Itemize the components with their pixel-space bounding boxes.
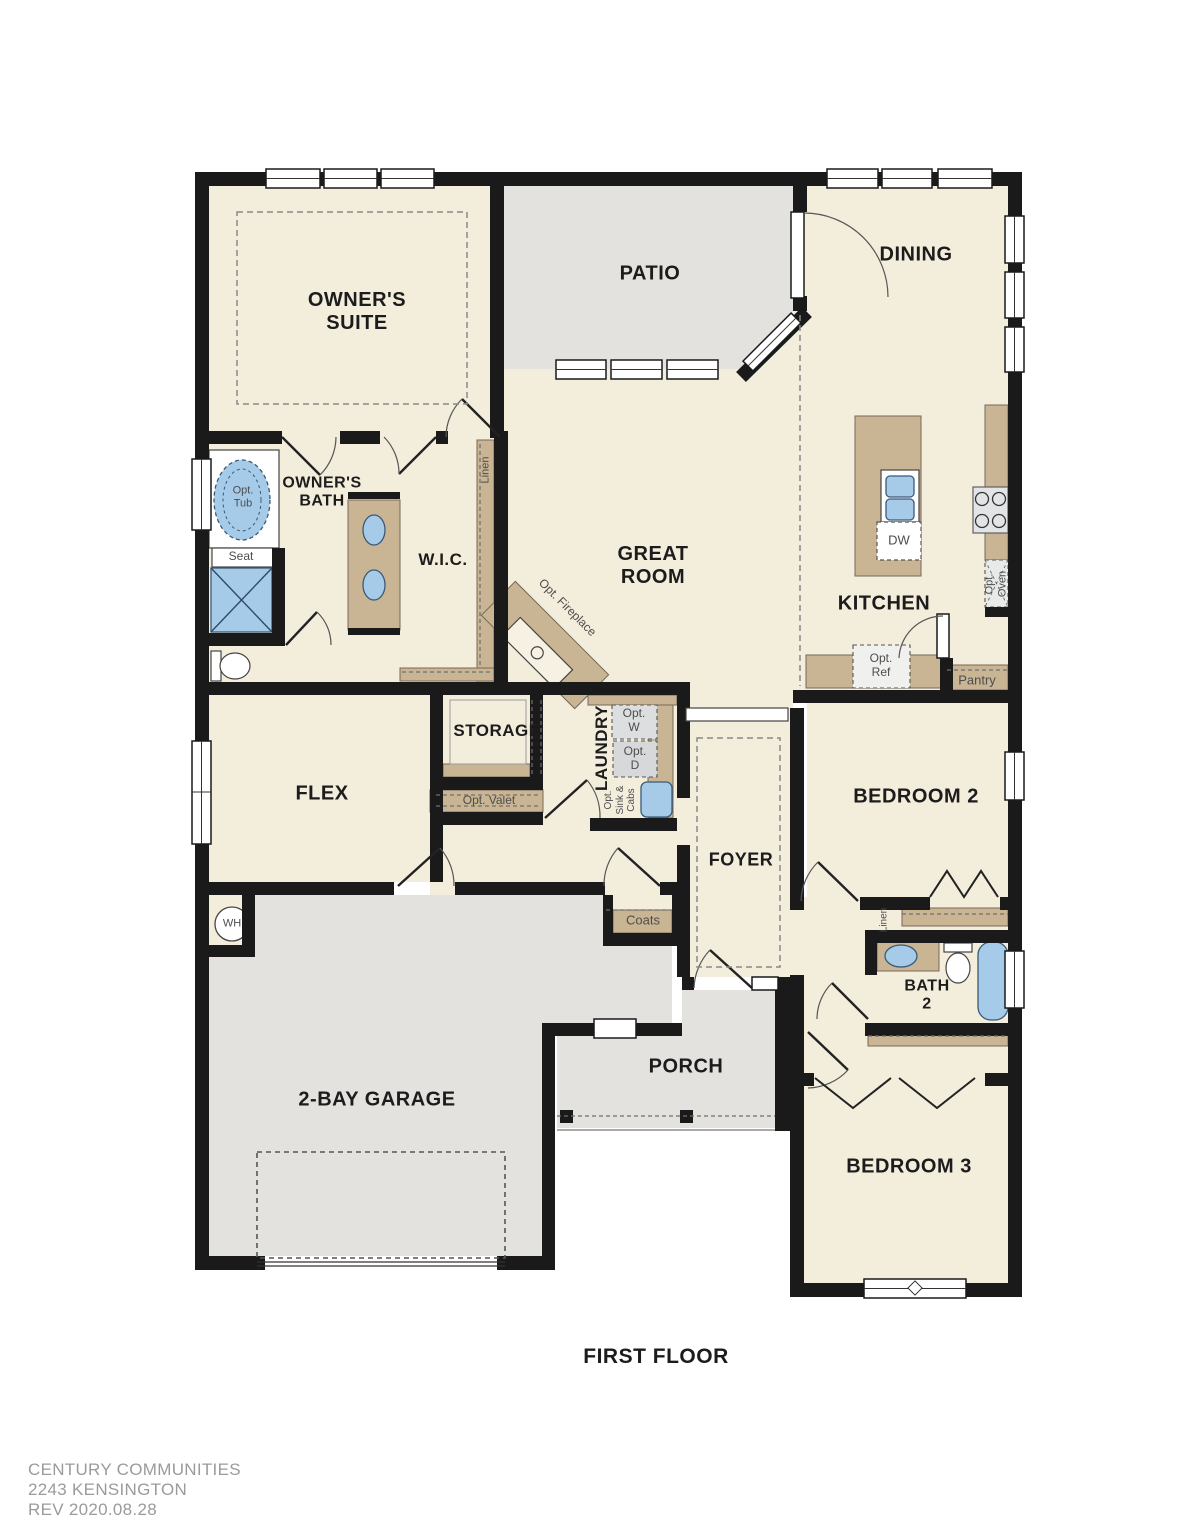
owners-suite-label: OWNER'S SUITE bbox=[308, 289, 406, 335]
great-room-label: GREAT ROOM bbox=[617, 543, 688, 589]
island-sink-basin-1 bbox=[886, 476, 914, 497]
bedroom3-label: BEDROOM 3 bbox=[846, 1156, 972, 1179]
bath2-tub bbox=[978, 942, 1008, 1020]
garage-label: 2-BAY GARAGE bbox=[298, 1089, 455, 1112]
opt-sink-cabs-label: Opt. Sink & Cabs bbox=[603, 786, 638, 815]
owners-bath-label: OWNER'S BATH bbox=[282, 475, 361, 512]
kitchen-counter-right-top bbox=[985, 405, 1008, 488]
seat-label: Seat bbox=[229, 550, 254, 564]
bedroom2-label: BEDROOM 2 bbox=[853, 786, 979, 809]
laundry-sink bbox=[641, 782, 672, 817]
front-door-sidelite bbox=[752, 977, 778, 990]
dining-label: DINING bbox=[880, 244, 953, 267]
wic-label: W.I.C. bbox=[418, 550, 467, 570]
wic-bottom-shelf bbox=[400, 668, 494, 681]
hall-linen-label: Linen bbox=[878, 908, 890, 932]
page-title: FIRST FLOOR bbox=[583, 1345, 729, 1369]
pantry-label: Pantry bbox=[958, 674, 996, 689]
bath2-label: BATH 2 bbox=[904, 978, 949, 1015]
opt-tub-label: Opt. Tub bbox=[233, 484, 254, 509]
bedroom2-room bbox=[807, 695, 1008, 930]
water-heater-label: WH bbox=[223, 918, 241, 931]
foyer-room bbox=[677, 708, 790, 977]
builder-name: CENTURY COMMUNITIES bbox=[28, 1460, 241, 1480]
pantry-door-leaf bbox=[937, 614, 949, 658]
owners-sink-2 bbox=[363, 570, 385, 600]
opt-washer-label: Opt. W bbox=[623, 707, 646, 735]
revision-date: REV 2020.08.28 bbox=[28, 1500, 157, 1520]
garage-door-opening bbox=[257, 1262, 505, 1266]
foyer-cased-opening bbox=[686, 708, 788, 721]
laundry-label: LAUNDRY bbox=[592, 705, 612, 791]
kitchen-counter-right-mid bbox=[985, 533, 1008, 560]
dw-label: DW bbox=[888, 534, 910, 549]
owners-toilet-bowl bbox=[220, 653, 250, 679]
floor-plan: OWNER'S SUITE PATIO DINING OWNER'S BATH … bbox=[0, 0, 1187, 1536]
opt-ref-label: Opt. Ref bbox=[870, 652, 893, 680]
plan-name: 2243 KENSINGTON bbox=[28, 1480, 187, 1500]
patio-dining-door-leaf bbox=[791, 212, 804, 298]
kitchen-label: KITCHEN bbox=[838, 593, 930, 616]
foyer-label: FOYER bbox=[709, 850, 774, 871]
storage-label: STORAGE bbox=[453, 721, 540, 741]
coats-label: Coats bbox=[626, 914, 660, 929]
porch-label: PORCH bbox=[649, 1056, 724, 1079]
opt-valet-label: Opt. Valet bbox=[463, 794, 515, 808]
patio-label: PATIO bbox=[620, 263, 681, 286]
flex-label: FLEX bbox=[295, 783, 348, 806]
great-room-passage bbox=[677, 682, 793, 710]
bedroom2-closet-shelf bbox=[902, 908, 1008, 926]
island-sink-basin-2 bbox=[886, 499, 914, 520]
bath2-sink bbox=[885, 945, 917, 967]
owners-sink-1 bbox=[363, 515, 385, 545]
opt-oven-label: Opt. Oven bbox=[983, 571, 1008, 597]
laundry-counter-top bbox=[588, 695, 677, 705]
opt-dryer-label: Opt. D bbox=[624, 745, 647, 773]
bath2-toilet-tank bbox=[944, 943, 972, 952]
wic-linen-label: Linen bbox=[480, 457, 493, 484]
storage-shelf bbox=[443, 764, 530, 777]
